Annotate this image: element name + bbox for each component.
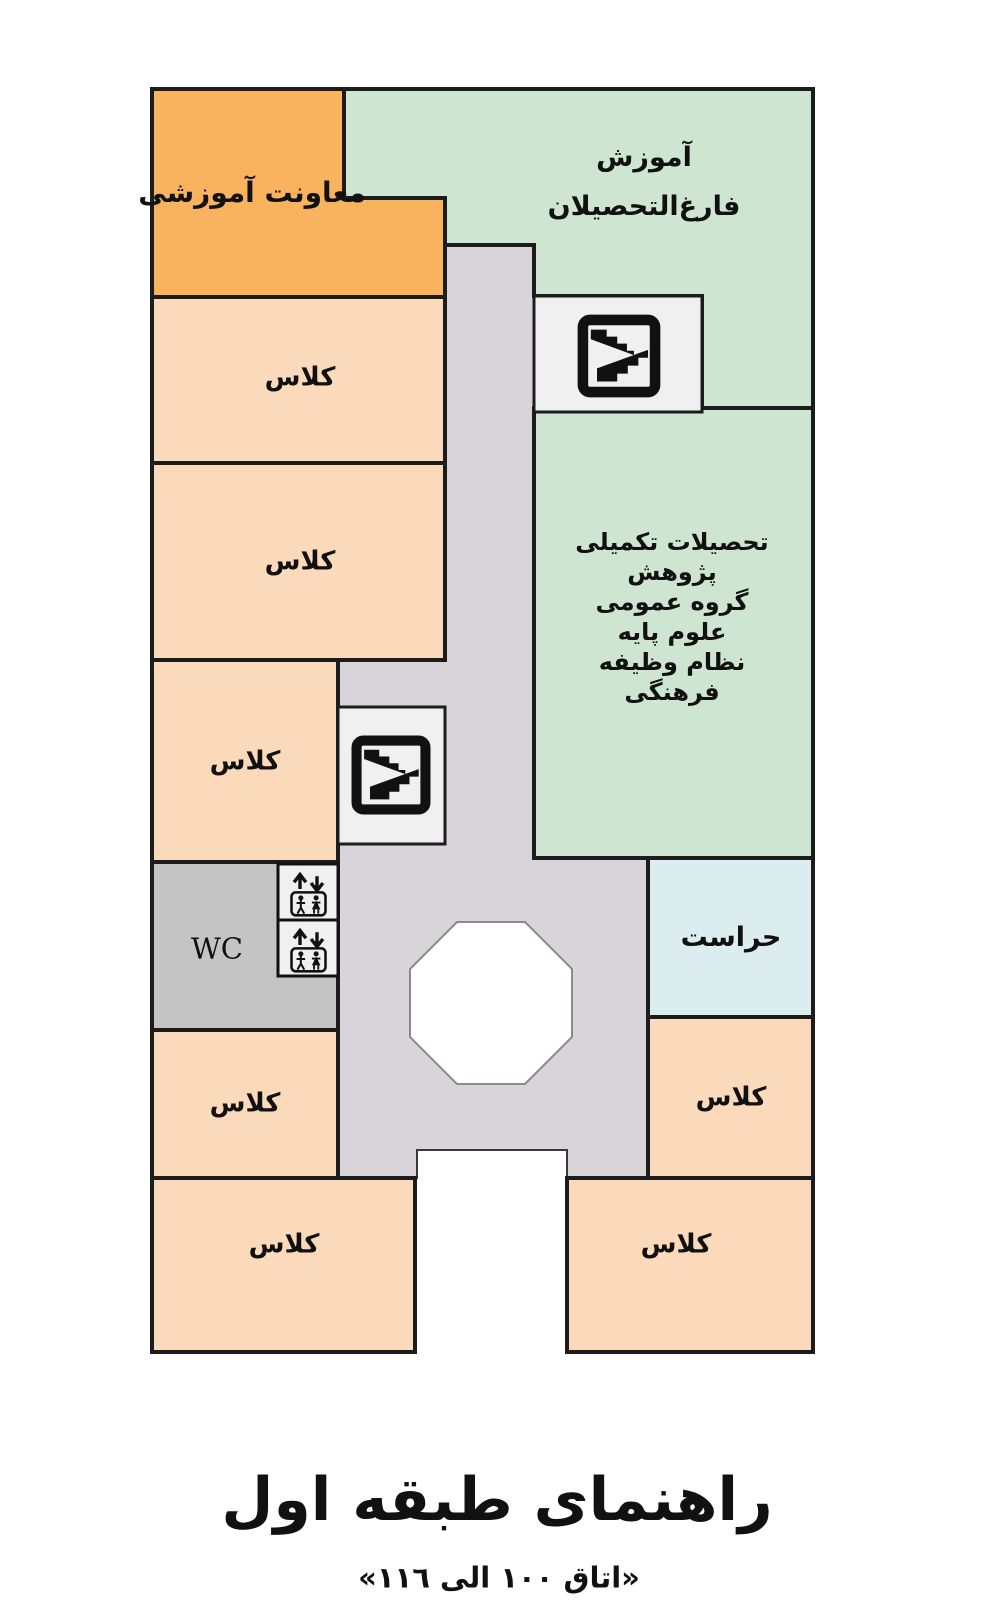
room-label-class: کلاس xyxy=(265,362,336,393)
room-label-graduates-line1: آموزش xyxy=(548,133,741,182)
room-class-7 xyxy=(567,1178,813,1352)
graduate-studies-line: نظام وظیفه xyxy=(575,647,768,677)
graduate-studies-line: فرهنگی xyxy=(575,677,768,707)
graduate-studies-line: علوم پایه xyxy=(575,617,768,647)
room-class-6 xyxy=(152,1178,415,1352)
room-label-wc: WC xyxy=(191,932,243,967)
room-label-deputy: معاونت آموزشی xyxy=(138,176,365,210)
atrium-octagon xyxy=(410,922,572,1084)
graduate-studies-line: پژوهش xyxy=(575,557,768,587)
floor-plan xyxy=(0,0,1000,1611)
room-label-class: کلاس xyxy=(265,546,336,577)
room-label-graduates-line2: فارغ‌التحصیلان xyxy=(548,182,741,231)
room-label-security: حراست xyxy=(681,922,782,954)
room-label-graduate-studies: تحصیلات تکمیلی پژوهش گروه عمومی علوم پای… xyxy=(575,527,768,707)
room-label-class: کلاس xyxy=(210,1088,281,1119)
floor-subtitle: «اتاق ١٠٠ الی ١١٦» xyxy=(358,1561,640,1596)
graduate-studies-line: گروه عمومی xyxy=(575,587,768,617)
floor-plan-page: معاونت آموزشی آموزش فارغ‌التحصیلان تحصیل… xyxy=(0,0,1000,1611)
floor-title: راهنمای طبقه اول xyxy=(221,1464,772,1536)
room-label-class: کلاس xyxy=(249,1229,320,1260)
graduate-studies-line: تحصیلات تکمیلی xyxy=(575,527,768,557)
room-label-class: کلاس xyxy=(696,1082,767,1113)
room-label-class: کلاس xyxy=(210,746,281,777)
room-label-class: کلاس xyxy=(641,1229,712,1260)
room-label-graduates: آموزش فارغ‌التحصیلان xyxy=(548,133,741,231)
